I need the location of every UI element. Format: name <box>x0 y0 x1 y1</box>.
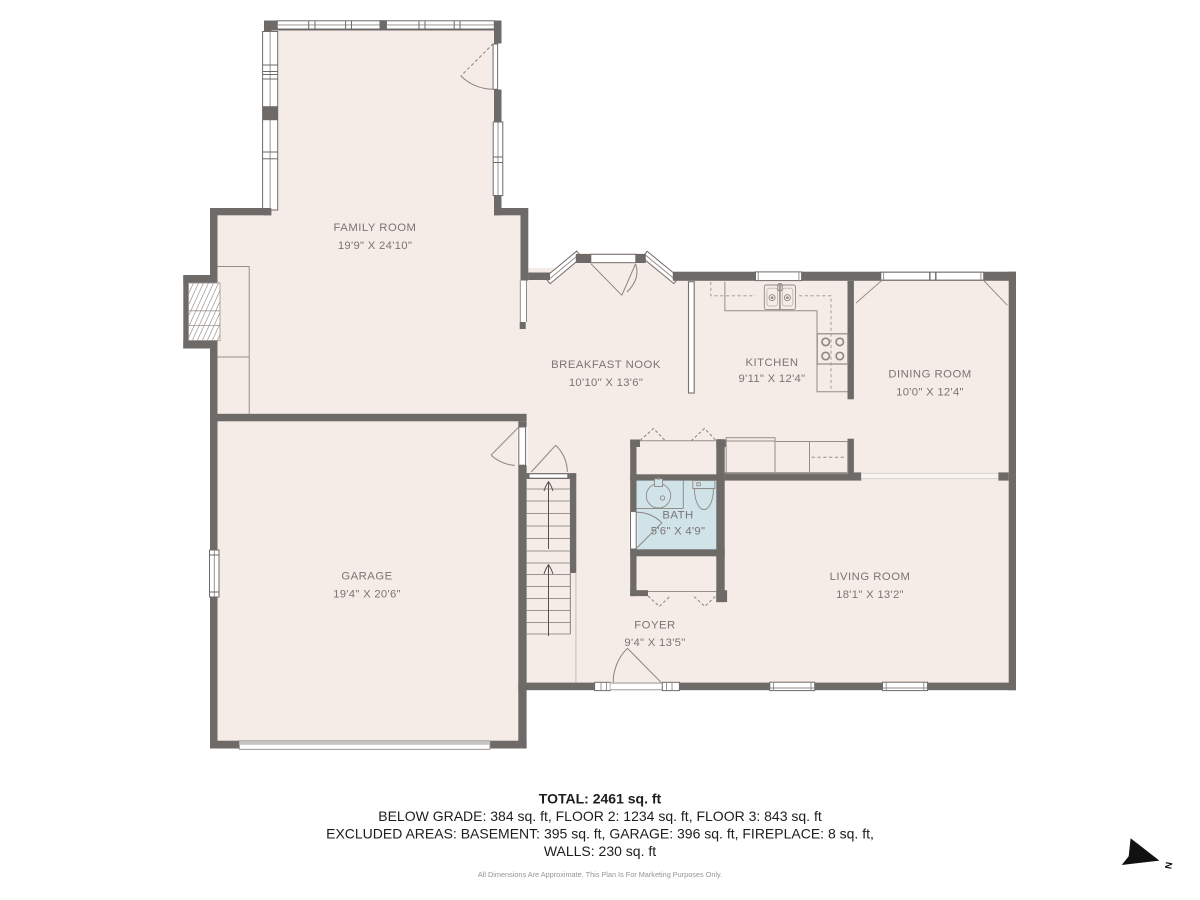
svg-text:10'0" X 12'4": 10'0" X 12'4" <box>896 387 964 399</box>
svg-text:GARAGE: GARAGE <box>341 571 392 583</box>
svg-text:19'9" X 24'10": 19'9" X 24'10" <box>338 240 412 252</box>
svg-text:10'10" X 13'6": 10'10" X 13'6" <box>569 377 643 389</box>
svg-text:FOYER: FOYER <box>634 620 675 632</box>
svg-text:9'4" X 13'5": 9'4" X 13'5" <box>624 637 685 649</box>
svg-text:DINING ROOM: DINING ROOM <box>888 369 971 381</box>
svg-text:FAMILY ROOM: FAMILY ROOM <box>334 222 417 234</box>
svg-text:19'4" X 20'6": 19'4" X 20'6" <box>333 589 401 601</box>
svg-text:18'1" X 13'2": 18'1" X 13'2" <box>836 589 904 601</box>
svg-text:BELOW GRADE: 384 sq. ft, FLOOR: BELOW GRADE: 384 sq. ft, FLOOR 2: 1234 s… <box>378 808 822 824</box>
svg-text:9'11" X 12'4": 9'11" X 12'4" <box>739 373 806 385</box>
svg-text:KITCHEN: KITCHEN <box>745 357 798 369</box>
svg-text:LIVING ROOM: LIVING ROOM <box>830 571 911 583</box>
svg-text:EXCLUDED AREAS: BASEMENT: 395: EXCLUDED AREAS: BASEMENT: 395 sq. ft, GA… <box>326 826 874 842</box>
svg-text:5'6" X 4'9": 5'6" X 4'9" <box>651 526 706 538</box>
svg-text:BREAKFAST NOOK: BREAKFAST NOOK <box>551 359 661 371</box>
svg-text:All Dimensions Are Approximate: All Dimensions Are Approximate. This Pla… <box>478 870 722 879</box>
svg-text:TOTAL: 2461 sq. ft: TOTAL: 2461 sq. ft <box>539 791 662 807</box>
svg-text:BATH: BATH <box>662 510 693 522</box>
svg-text:WALLS: 230 sq. ft: WALLS: 230 sq. ft <box>544 843 656 859</box>
